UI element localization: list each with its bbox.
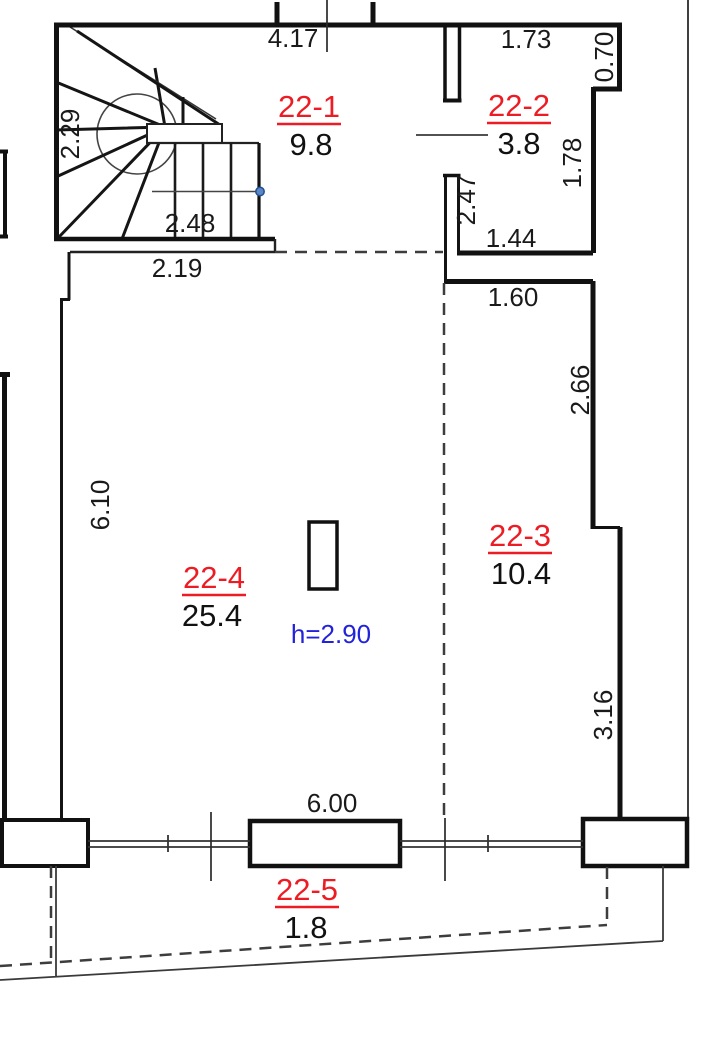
- room-label-22-1: 22-1: [278, 89, 340, 124]
- neighbour-wall-stub: [0, 150, 8, 238]
- dim-stair-depth: 2.29: [55, 109, 85, 160]
- room-area-22-1: 9.8: [289, 127, 332, 162]
- spiral-staircase: [56, 27, 264, 239]
- balcony-door-pier: [250, 821, 400, 866]
- stair-landing-slab: [147, 124, 222, 143]
- dim-22-3-top: 1.60: [488, 282, 539, 312]
- floor-plan: 22-1 9.8 22-2 3.8 22-3 10.4 22-4 25.4 22…: [0, 0, 720, 1043]
- dim-22-2-notch: 0.70: [589, 32, 619, 83]
- dim-22-2-bottom: 1.44: [486, 223, 537, 253]
- column: [309, 522, 337, 589]
- corner-pier-bottom-left: [2, 820, 88, 866]
- dim-terrace-width: 6.00: [307, 788, 358, 818]
- dim-stair-width: 2.48: [165, 208, 216, 238]
- room-area-22-5: 1.8: [284, 910, 327, 945]
- stair-stringer-thick: [77, 31, 220, 125]
- shaft-slot-walls: [445, 25, 460, 101]
- room-label-22-3: 22-3: [489, 518, 551, 553]
- corner-pier-bottom-right: [583, 819, 687, 866]
- room-label-22-4: 22-4: [183, 560, 245, 595]
- room-area-22-3: 10.4: [491, 556, 551, 591]
- room-area-22-4: 25.4: [182, 598, 242, 633]
- dim-landing-width: 2.19: [152, 253, 203, 283]
- dim-22-2-top: 1.73: [501, 24, 552, 54]
- dim-22-3-right-upper: 2.66: [565, 365, 595, 416]
- floor-plan-canvas: 22-1 9.8 22-2 3.8 22-3 10.4 22-4 25.4 22…: [0, 0, 720, 1043]
- room-area-22-2: 3.8: [497, 126, 540, 161]
- stair-node-dot: [256, 187, 264, 195]
- wall-22-4-left: [60, 252, 70, 822]
- room-label-22-2: 22-2: [488, 88, 550, 123]
- dim-22-4-left: 6.10: [85, 480, 115, 531]
- dim-22-2-left: 2.47: [451, 175, 481, 226]
- room-label-22-5: 22-5: [276, 872, 338, 907]
- dim-top-width: 4.17: [268, 23, 319, 53]
- dim-22-2-right: 1.78: [557, 138, 587, 189]
- dim-22-3-right-lower: 3.16: [588, 690, 618, 741]
- ceiling-height-note: h=2.90: [291, 619, 371, 649]
